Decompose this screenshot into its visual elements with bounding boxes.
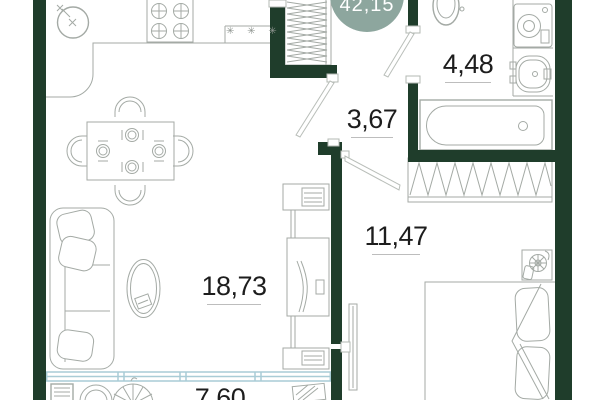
area-label-hallway: 3,67 bbox=[330, 104, 414, 138]
kitchen-sink bbox=[57, 5, 89, 38]
sofa bbox=[50, 208, 114, 369]
door-leaf-living bbox=[296, 81, 334, 137]
door-leaf-bathroom bbox=[384, 32, 414, 77]
entry-wardrobe bbox=[285, 0, 331, 65]
balcony-window bbox=[46, 372, 331, 381]
balcony-bench bbox=[51, 384, 73, 400]
tv-console bbox=[283, 184, 329, 369]
rug bbox=[127, 260, 160, 318]
dining-table bbox=[87, 122, 174, 180]
washing-machine bbox=[514, 4, 552, 47]
double-bed bbox=[425, 282, 557, 400]
area-label-bedroom: 11,47 bbox=[354, 221, 438, 255]
plant-pot bbox=[292, 383, 325, 400]
floor-plan-drawing bbox=[0, 0, 600, 400]
bathroom-sink bbox=[510, 56, 551, 92]
area-label-living-kitchen: 18,73 bbox=[192, 271, 276, 305]
door-leaf-bedroom bbox=[345, 156, 400, 190]
freezer-marks: ✳ ✳ ✳ bbox=[226, 26, 272, 37]
floor-plan: 42,15 18,73 11,47 4,48 3,67 7,60 ✳ ✳ ✳ bbox=[0, 0, 600, 400]
area-label-balcony: 7,60 bbox=[182, 383, 258, 400]
stove bbox=[147, 0, 193, 42]
nightstand bbox=[522, 250, 552, 280]
bathtub bbox=[420, 100, 552, 150]
bedroom-wardrobe bbox=[408, 158, 552, 202]
area-label-bathroom: 4,48 bbox=[426, 49, 510, 83]
toilet bbox=[433, 0, 464, 25]
total-area-value: 42,15 bbox=[339, 0, 394, 17]
balcony-table bbox=[80, 385, 112, 400]
